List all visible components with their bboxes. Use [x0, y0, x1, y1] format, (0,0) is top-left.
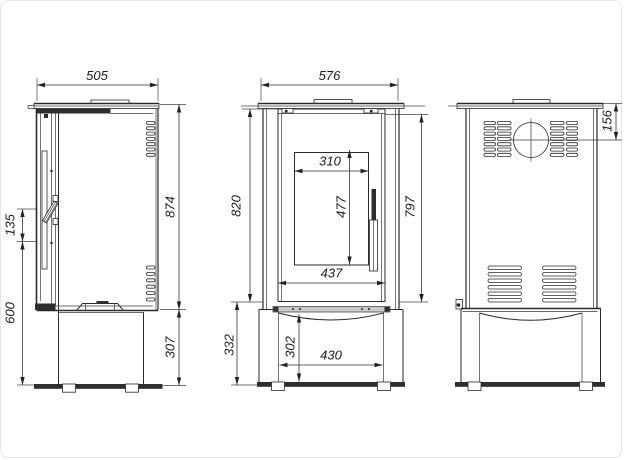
foot	[63, 384, 76, 392]
dim-side-base-height: 307	[163, 336, 178, 358]
front-door-handle	[370, 189, 378, 271]
dim-front-glass-height: 477	[334, 195, 349, 217]
back-dimensions: 156	[600, 104, 623, 141]
side-floor-plate	[34, 384, 163, 389]
side-vent-slats-lower	[147, 266, 156, 301]
dim-side-top-width: 505	[86, 68, 108, 83]
foot	[580, 382, 593, 391]
ashpan-knob	[97, 301, 109, 304]
ashpan-tray	[77, 304, 124, 311]
dim-front-base-opening-width: 430	[320, 348, 342, 363]
foot	[468, 382, 481, 391]
front-view: 576 820 797 310 477 437	[222, 68, 429, 391]
side-vent-slats-upper	[147, 122, 156, 157]
drawing-canvas: 505 135 600 874 307	[0, 0, 622, 458]
door-hinge-mark	[50, 170, 52, 172]
dim-front-door-height-right: 797	[403, 195, 418, 217]
dim-side-handle-height: 600	[3, 301, 18, 323]
dim-front-top-width: 576	[319, 68, 341, 83]
foot	[126, 384, 139, 392]
dim-front-door-height-left: 820	[229, 194, 244, 216]
front-dimensions: 576 820 797 310 477 437	[222, 68, 429, 385]
back-vent-slats-lower	[488, 266, 576, 302]
back-view: 156	[448, 100, 622, 391]
side-view: 505 135 600 874 307	[3, 68, 187, 392]
technical-drawing: 505 135 600 874 307	[1, 1, 623, 459]
dim-front-base-opening-height: 302	[283, 335, 298, 357]
dim-side-handle-span: 135	[3, 213, 18, 235]
side-glass-strip	[42, 151, 47, 269]
door-glass	[295, 153, 369, 266]
dim-front-door-width: 437	[321, 266, 343, 281]
side-door-sill	[35, 304, 56, 311]
front-base-arch	[279, 313, 384, 320]
foot	[378, 382, 391, 391]
back-base-arch	[480, 313, 583, 320]
door-hinge-mark	[50, 242, 52, 244]
dim-side-body-height: 874	[163, 196, 178, 218]
front-base-trim	[273, 307, 390, 313]
foot	[272, 382, 285, 391]
side-top-bar	[37, 109, 111, 114]
dim-front-base-height-left: 332	[222, 333, 237, 355]
dim-front-glass-width: 310	[319, 154, 341, 169]
dim-back-flue-offset: 156	[600, 109, 615, 131]
